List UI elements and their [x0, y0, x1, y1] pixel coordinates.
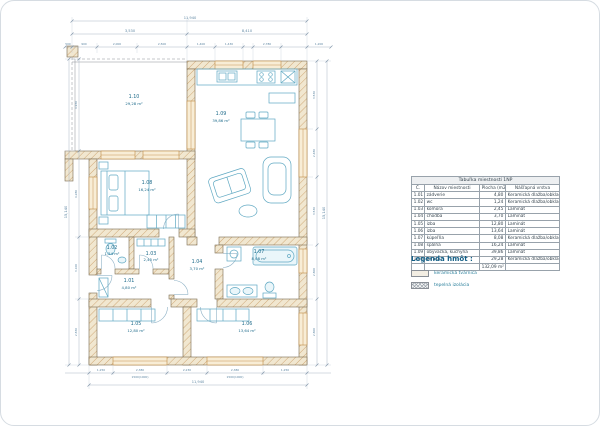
- dimension-label: 2,800: [312, 328, 316, 336]
- dimension-label: 15,140: [322, 206, 326, 219]
- table-cell: 13,64: [480, 228, 506, 235]
- room-table-body: 1.01zádverie4,80Keramická dlažba/obklad1…: [412, 192, 560, 264]
- terrace-outline: [67, 46, 187, 151]
- legend-item-ceramic: keramická tvárnica: [411, 270, 477, 277]
- drawing-sheet: 1.1029,28 m² 1.0939,86 m² 1.0816,24 m² 1…: [0, 0, 600, 426]
- dimension-label: 3,530: [125, 29, 136, 33]
- table-cell: 8,08: [480, 235, 506, 242]
- dimension-label: 2,230: [183, 368, 191, 372]
- dimension-label: 2,480: [312, 149, 316, 157]
- svg-text:1,24 m²: 1,24 m²: [105, 251, 120, 256]
- table-cell: Laminát: [506, 249, 560, 256]
- table-cell: 1.01: [412, 192, 425, 199]
- table-cell: Keramická dlažba/obklad: [506, 256, 560, 263]
- table-cell: 1.04: [412, 213, 425, 220]
- washing-machine: [227, 247, 241, 261]
- table-cell: 16,24: [480, 242, 506, 249]
- legend: Legenda hmôt : keramická tvárnica tepeln…: [411, 255, 477, 294]
- room-label: 1.05: [131, 321, 142, 327]
- room-label: 1.06: [242, 321, 253, 327]
- svg-text:16,24 m²: 16,24 m²: [138, 187, 156, 192]
- table-cell: 1.08: [412, 242, 425, 249]
- dimension-label: 11,940: [184, 16, 197, 20]
- svg-text:12,80 m²: 12,80 m²: [127, 328, 145, 333]
- table-cell: 1,24: [480, 199, 506, 206]
- table-cell: chodba: [425, 213, 480, 220]
- table-cell: 1.07: [412, 235, 425, 242]
- table-cell: 29,28: [480, 256, 506, 263]
- dimension-label: 4,280: [74, 190, 78, 198]
- svg-text:13,64 m²: 13,64 m²: [238, 328, 256, 333]
- svg-text:39,86 m²: 39,86 m²: [212, 118, 230, 123]
- table-cell: Keramická dlažba/obklad: [506, 235, 560, 242]
- table-cell: Laminát: [506, 206, 560, 213]
- table-row: 1.06izba13,64Laminát: [412, 228, 560, 235]
- dimension-label: 1,430: [225, 42, 233, 46]
- extension-lines: [65, 17, 331, 389]
- wardrobe: [147, 215, 185, 228]
- dining-table: [241, 112, 275, 148]
- desk: [269, 93, 295, 103]
- table-cell: spálňa: [425, 242, 480, 249]
- dimension-label: 2,380: [231, 368, 239, 372]
- dimension-label: 2,500: [158, 42, 166, 46]
- table-cell: Keramická dlažba/obklad: [506, 192, 560, 199]
- armchair: [263, 157, 291, 203]
- legend-label: keramická tvárnica: [434, 271, 477, 276]
- wc-basin: [118, 257, 126, 263]
- table-cell: zádverie: [425, 192, 480, 199]
- table-row: 1.01zádverie4,80Keramická dlažba/obklad: [412, 192, 560, 199]
- table-cell: Laminát: [506, 220, 560, 227]
- table-header: Plocha (m2): [480, 185, 506, 192]
- table-header: Názov miestnosti: [425, 185, 480, 192]
- dimension-lines: 11,940 3,530 8,410 500 900 2,000 2,500 1…: [64, 16, 333, 387]
- svg-text:2,45 m²: 2,45 m²: [144, 257, 159, 262]
- table-cell: izba: [425, 228, 480, 235]
- table-cell: Laminát: [506, 242, 560, 249]
- table-cell: Laminát: [506, 228, 560, 235]
- dimension-label: 1,250: [97, 368, 105, 372]
- room-label: 1.01: [124, 278, 135, 284]
- table-cell: 1.06: [412, 228, 425, 235]
- table-cell: 39,86: [480, 249, 506, 256]
- dimension-label: 500: [65, 42, 71, 46]
- toilet: [263, 282, 276, 298]
- pantry-shelf: [137, 239, 165, 246]
- dimension-label: 900: [81, 42, 87, 46]
- kitchen-counter: [197, 69, 297, 85]
- table-cell: izba: [425, 220, 480, 227]
- table-cell: komora: [425, 206, 480, 213]
- terrace-column: [67, 46, 78, 57]
- table-row: 1.04chodba3,70Laminát: [412, 213, 560, 220]
- room-label: 1.07: [254, 249, 265, 255]
- table-cell: [506, 264, 560, 271]
- legend-label: tepelná izolácia: [434, 283, 469, 288]
- table-cell: Laminát: [506, 213, 560, 220]
- table-row: 1.03komora2,45Laminát: [412, 206, 560, 213]
- dimension-label: 2,000: [113, 42, 121, 46]
- dimension-label: 2,380: [136, 368, 144, 372]
- table-header-row: Č. Názov miestnosti Plocha (m2) Nášľapná…: [412, 185, 560, 192]
- table-row: 1.05izba12,80Laminát: [412, 220, 560, 227]
- dimension-label: 3,530: [312, 91, 316, 99]
- svg-text:4,80 m²: 4,80 m²: [122, 285, 137, 290]
- coffee-table: [239, 205, 257, 217]
- room-label: 1.10: [129, 94, 140, 100]
- table-cell: 2,45: [480, 206, 506, 213]
- table-header: Č.: [412, 185, 425, 192]
- svg-text:8,08 m²: 8,08 m²: [252, 256, 267, 261]
- entry-closet: [99, 278, 108, 297]
- table-cell: 1.02: [412, 199, 425, 206]
- dimension-label: 15,140: [64, 205, 68, 218]
- table-header: Nášľapná vrstva: [506, 185, 560, 192]
- table-cell: 3,70: [480, 213, 506, 220]
- table-row: 1.08spálňa16,24Laminát: [412, 242, 560, 249]
- dimension-label: 8,410: [242, 29, 253, 33]
- ceramic-block-swatch: [411, 270, 429, 277]
- table-cell: 12,80: [480, 220, 506, 227]
- dimension-label: 3,100: [74, 264, 78, 272]
- dimension-label: 2,800: [312, 268, 316, 276]
- sofa: [208, 168, 252, 204]
- bed: [99, 162, 149, 224]
- dimension-label: 1,200: [315, 42, 323, 46]
- table-cell: Keramická dlažba/obklad: [506, 199, 560, 206]
- table-cell: 1.05: [412, 220, 425, 227]
- table-title: Tabuľka miestností 1NP: [412, 177, 560, 185]
- table-row: 1.07kúpeľňa8,08Keramická dlažba/obklad: [412, 235, 560, 242]
- room-label: 1.04: [192, 259, 203, 265]
- table-cell: wc: [425, 199, 480, 206]
- dimension-label: 1,250: [281, 368, 289, 372]
- windows: [89, 61, 307, 365]
- dimension-label: 3,530: [312, 207, 316, 215]
- dimension-label: 1500(1000): [132, 375, 149, 379]
- legend-title: Legenda hmôt :: [411, 255, 477, 263]
- closet-room105: [99, 309, 155, 321]
- table-cell: 4,80: [480, 192, 506, 199]
- insulation-swatch: [411, 282, 429, 289]
- dimension-label: 4,930: [74, 101, 78, 109]
- svg-text:3,70 m²: 3,70 m²: [190, 266, 205, 271]
- total-area: 132,09 m²: [480, 264, 506, 271]
- washbasin: [227, 285, 257, 297]
- dimension-label: 2,830: [74, 328, 78, 336]
- dimension-label: 11,940: [192, 380, 205, 384]
- table-cell: kúpeľňa: [425, 235, 480, 242]
- room-label: 1.08: [142, 180, 153, 186]
- closet-room106: [197, 309, 249, 321]
- dimension-label: 1,400: [197, 42, 205, 46]
- legend-item-insulation: tepelná izolácia: [411, 282, 477, 289]
- room-label: 1.09: [216, 111, 227, 117]
- svg-text:29,28 m²: 29,28 m²: [125, 101, 143, 106]
- table-cell: 1.03: [412, 206, 425, 213]
- dimension-label: 2,780: [263, 42, 271, 46]
- dimension-label: 1500(1000): [227, 375, 244, 379]
- table-row: 1.02wc1,24Keramická dlažba/obklad: [412, 199, 560, 206]
